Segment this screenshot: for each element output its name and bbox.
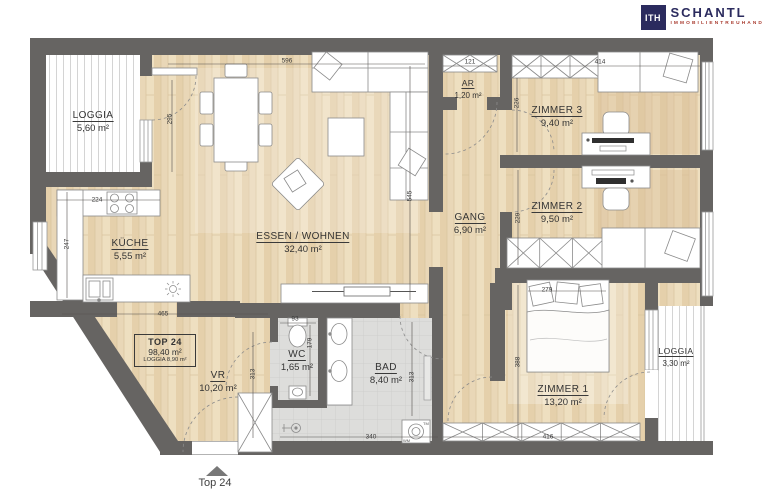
dimension-label: 388: [515, 357, 522, 368]
room-name: LOGGIA: [659, 347, 694, 357]
brand-tagline: IMMOBILIENTREUHAND: [671, 20, 765, 27]
dimension-label: 313: [250, 369, 257, 380]
room-area: 3,30 m²: [659, 359, 694, 369]
room-label-vr: VR 10,20 m²: [199, 365, 237, 395]
dimension-label: 414: [595, 59, 606, 66]
room-name: BAD: [375, 362, 397, 374]
sideboard-tv: [281, 284, 428, 303]
room-area: 6,90 m²: [454, 225, 486, 237]
dimension-label: 229: [515, 213, 522, 224]
room-name: KÜCHE: [111, 238, 148, 250]
brand-logo: ITH SCHANTL IMMOBILIENTREUHAND: [641, 5, 765, 30]
dimension-label: 226: [514, 98, 521, 109]
room-label-essen-wohnen: ESSEN / WOHNEN 32,40 m²: [256, 226, 349, 256]
dimension-label: 416: [543, 434, 554, 441]
floor-plan: TM WM LOGGIA 5,60 m² KÜCHE 5,55 m² ESSEN…: [0, 0, 770, 491]
room-area: 32,40 m²: [256, 244, 349, 256]
room-area: 10,20 m²: [199, 383, 237, 395]
room-area: 1,20 m²: [454, 91, 481, 101]
wardrobe-zimmer3: [512, 55, 600, 78]
bed-zimmer1: [527, 280, 609, 372]
dimension-label: 224: [92, 197, 103, 204]
washing-machine: TM WM: [402, 420, 430, 443]
room-label-kueche: KÜCHE 5,55 m²: [111, 233, 148, 263]
wc-sink-icon: [289, 386, 306, 399]
ith-monogram-icon: ITH: [641, 5, 666, 30]
room-area: 1,65 m²: [281, 362, 313, 374]
entrance-label: Top 24: [198, 477, 231, 489]
bed-zimmer2: [602, 228, 700, 268]
room-area: 9,50 m²: [532, 214, 583, 226]
dimension-label: 279: [542, 287, 553, 294]
room-name: ZIMMER 3: [532, 105, 583, 117]
room-area: 13,20 m²: [538, 397, 589, 409]
room-name: ESSEN / WOHNEN: [256, 231, 349, 243]
room-area: 5,60 m²: [73, 123, 114, 135]
entrance-arrow-icon: [206, 466, 228, 476]
room-label-zimmer1: ZIMMER 1 13,20 m²: [538, 379, 589, 409]
unit-total-area: 98,40 m²: [136, 347, 194, 357]
wardrobe-zimmer2: [507, 238, 605, 268]
unit-label: TOP 24: [136, 337, 194, 347]
room-label-wc: WC 1,65 m²: [281, 344, 313, 374]
room-name: AR: [462, 79, 475, 89]
door-leaf: [152, 68, 197, 75]
washer-label: WM: [403, 438, 410, 443]
dimension-label: 247: [64, 239, 71, 250]
wardrobe-zimmer1: [443, 423, 640, 441]
loggia-right-floor: [658, 306, 700, 441]
room-label-loggia-right: LOGGIA 3,30 m²: [659, 341, 694, 369]
dimension-label: 465: [158, 311, 169, 318]
room-label-gang: GANG 6,90 m²: [454, 207, 486, 237]
room-name: GANG: [454, 212, 485, 224]
entrance-opening: [192, 441, 238, 455]
dimension-label: 545: [407, 191, 414, 202]
room-area: 5,55 m²: [111, 251, 148, 263]
room-label-bad: BAD 8,40 m²: [370, 357, 402, 387]
room-name: ZIMMER 1: [538, 384, 589, 396]
room-area: 9,40 m²: [532, 118, 583, 130]
radiator: [424, 356, 431, 400]
dimension-label: 295: [167, 114, 174, 125]
coffee-table: [328, 118, 364, 156]
room-label-zimmer2: ZIMMER 2 9,50 m²: [532, 196, 583, 226]
wardrobe-vr: [238, 393, 272, 452]
room-name: LOGGIA: [73, 110, 114, 122]
dimension-label: 313: [409, 372, 416, 383]
dimension-label: 121: [465, 59, 476, 66]
bed-zimmer3: [598, 52, 698, 92]
room-label-loggia-top-left: LOGGIA 5,60 m²: [73, 105, 114, 135]
room-label-zimmer3: ZIMMER 3 9,40 m²: [532, 100, 583, 130]
unit-info-box: TOP 24 98,40 m² LOGGIA 8,90 m²: [134, 334, 196, 367]
room-label-ar: AR 1,20 m²: [454, 73, 481, 101]
unit-loggia-area: LOGGIA 8,90 m²: [136, 357, 194, 364]
room-area: 8,40 m²: [370, 375, 402, 387]
dryer-label: TM: [423, 421, 429, 426]
dimension-label: 93: [291, 316, 298, 323]
room-name: ZIMMER 2: [532, 201, 583, 213]
dimension-label: 340: [366, 434, 377, 441]
dimension-label: 596: [282, 58, 293, 65]
vanity-double-sink: [327, 318, 352, 405]
tv-icon: [344, 287, 390, 296]
room-name: WC: [288, 349, 305, 361]
room-name: VR: [211, 370, 226, 382]
brand-name: SCHANTL: [671, 5, 765, 20]
